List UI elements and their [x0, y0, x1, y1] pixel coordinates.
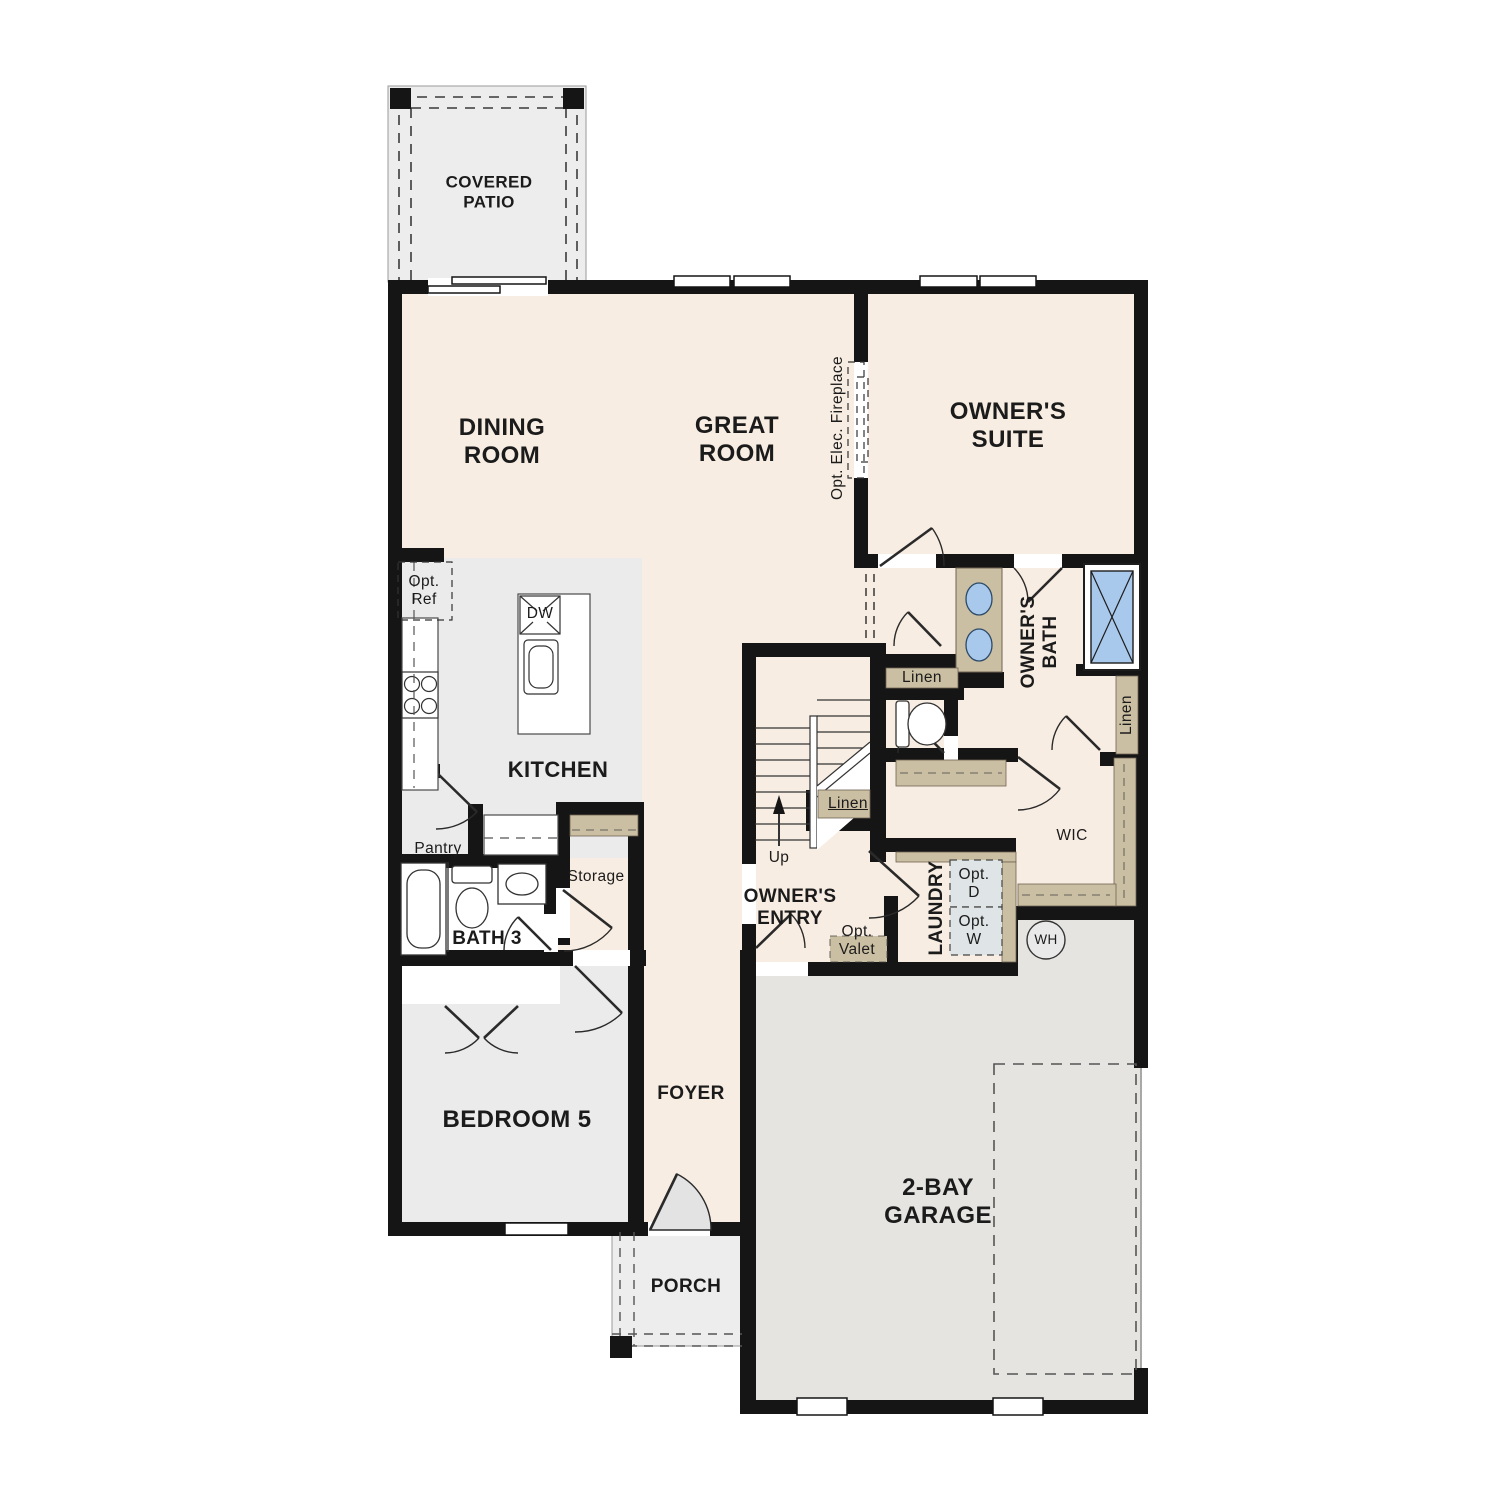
toilet-tank	[896, 701, 909, 747]
dw-label: DW	[520, 605, 560, 623]
toilet-bowl	[908, 703, 946, 745]
garage-label: 2-BAY GARAGE	[868, 1174, 1008, 1230]
linen-stairs-label: Linen	[818, 795, 878, 813]
sink-bowl	[506, 873, 538, 895]
porch-label: PORCH	[641, 1276, 731, 1298]
dining-room-label: DINING ROOM	[442, 414, 562, 470]
bedroom-5-label: BEDROOM 5	[407, 1106, 627, 1134]
floorplan-graphics	[0, 0, 1500, 1500]
covered-patio-label: COVERED PATIO	[434, 172, 544, 211]
vanity-sink	[966, 629, 992, 661]
bath-3-label: BATH 3	[437, 928, 537, 950]
wic-shelf	[1114, 758, 1136, 906]
owners-entry-label: OWNER'S ENTRY	[734, 886, 846, 930]
opt-valet-label: Opt. Valet	[833, 923, 881, 959]
up-label: Up	[759, 849, 799, 867]
vanity-sink	[966, 583, 992, 615]
linen-label: Linen	[892, 669, 952, 687]
laundry-shelf	[1002, 862, 1016, 962]
owners-bath-label: OWNER'S BATH	[1018, 586, 1062, 698]
opt-ref-label: Opt. Ref	[402, 573, 446, 609]
storage-shelf	[570, 815, 638, 836]
foyer-label: FOYER	[646, 1083, 736, 1105]
storage-label: Storage	[556, 868, 636, 886]
wh-label: WH	[1028, 932, 1064, 948]
opt-elec-fireplace-label: Opt. Elec. Fireplace	[829, 356, 847, 500]
wic-label: WIC	[1042, 827, 1102, 845]
floor-plan: COVERED PATIO DINING ROOM GREAT ROOM OWN…	[0, 0, 1500, 1500]
linen-right-label: Linen	[1118, 695, 1136, 735]
kitchen-label: KITCHEN	[488, 757, 628, 783]
toilet-bowl	[456, 888, 488, 928]
owners-suite-label: OWNER'S SUITE	[943, 398, 1073, 454]
great-room-label: GREAT ROOM	[677, 412, 797, 468]
opt-d-label: Opt. D	[952, 866, 996, 902]
opt-w-label: Opt. W	[952, 913, 996, 949]
toilet-tank	[452, 866, 492, 883]
patio-slider-door	[428, 286, 500, 293]
patio-slider-door	[452, 277, 546, 284]
pantry-label: Pantry	[403, 840, 473, 858]
laundry-label: LAUNDRY	[926, 861, 948, 956]
